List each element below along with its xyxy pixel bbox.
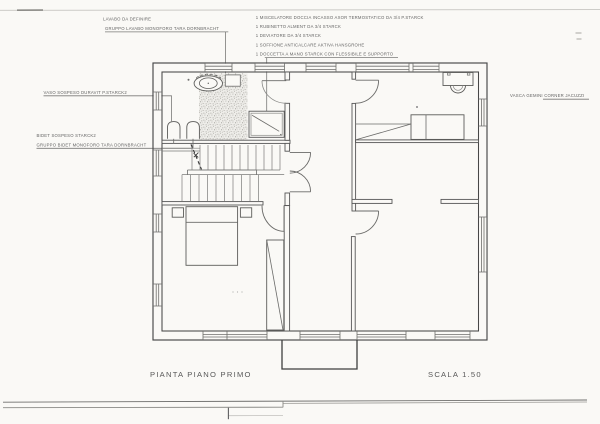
svg-text:LAVABO DA DEFINIRE: LAVABO DA DEFINIRE: [103, 17, 151, 22]
svg-text:BIDET SOSPESO STARCK2: BIDET SOSPESO STARCK2: [37, 133, 97, 138]
svg-text:GRUPPO BIDET MONOFORO TARA DOR: GRUPPO BIDET MONOFORO TARA DORNBRACHT: [37, 142, 147, 147]
svg-text:1 MISCELATORE DOCCIA INCASSO A: 1 MISCELATORE DOCCIA INCASSO AXOR TERMOS…: [256, 15, 424, 20]
svg-text:1 DEVIATORE DA 3/4 STARCK: 1 DEVIATORE DA 3/4 STARCK: [256, 33, 321, 38]
svg-text:PIANTA PIANO PRIMO: PIANTA PIANO PRIMO: [150, 370, 252, 379]
svg-text:1 DOCCETTA A MANO STARCK CON F: 1 DOCCETTA A MANO STARCK CON FLESSIBILE …: [256, 52, 394, 57]
svg-text:VASO SOSPESO DURAVIT P.STARCK2: VASO SOSPESO DURAVIT P.STARCK2: [44, 90, 128, 95]
svg-text:1 SOFFIONE ANTICALCARE AKTIVA: 1 SOFFIONE ANTICALCARE AKTIVA HANSGROHE: [256, 42, 365, 47]
svg-text:VASCA GEMINI CORNER JACUZZI: VASCA GEMINI CORNER JACUZZI: [510, 93, 584, 98]
svg-text:1 RUBINETTO ALMENT DA 3/4 STAR: 1 RUBINETTO ALMENT DA 3/4 STARCK: [256, 24, 341, 29]
svg-text:GRUPPO LAVABO MONOFORO TARA DO: GRUPPO LAVABO MONOFORO TARA DORNBRACHT: [105, 26, 219, 31]
svg-text:SCALA 1.50: SCALA 1.50: [428, 370, 482, 379]
